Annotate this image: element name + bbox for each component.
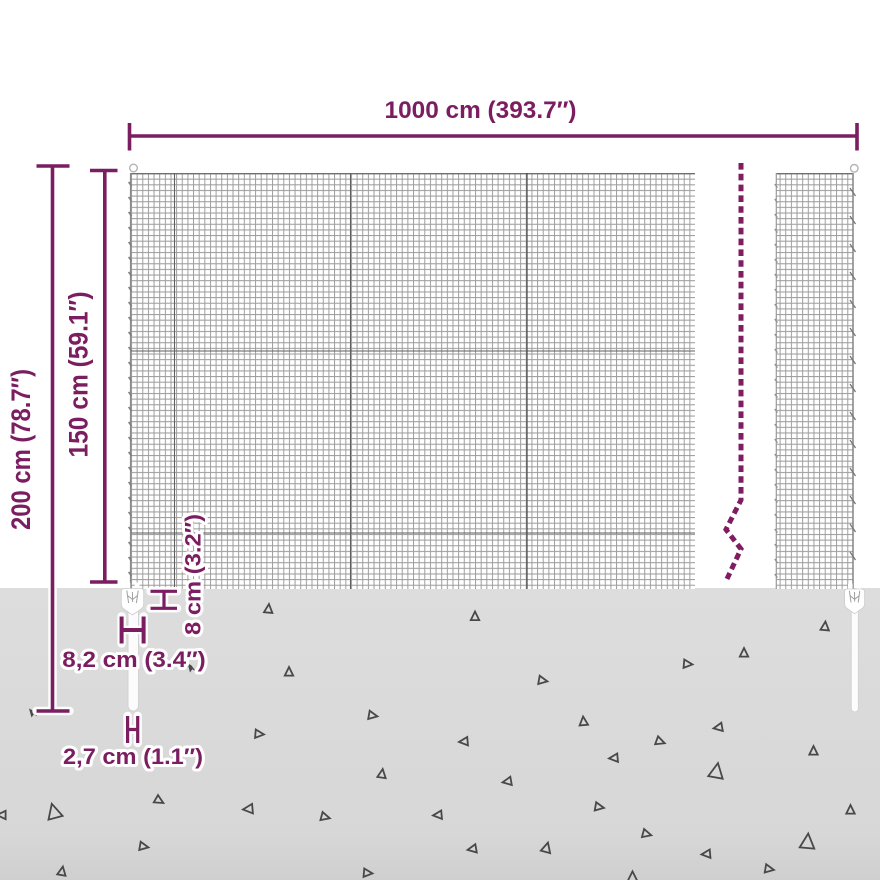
svg-text:150 cm (59.1″): 150 cm (59.1″) [64,292,94,458]
svg-text:2,7 cm (1.1″): 2,7 cm (1.1″) [63,744,203,769]
svg-text:8 cm (3.2″): 8 cm (3.2″) [181,514,206,635]
svg-text:8,2 cm (3.4″): 8,2 cm (3.4″) [62,647,206,672]
svg-text:1000 cm (393.7″): 1000 cm (393.7″) [385,97,577,124]
svg-text:200 cm (78.7″): 200 cm (78.7″) [6,369,36,530]
